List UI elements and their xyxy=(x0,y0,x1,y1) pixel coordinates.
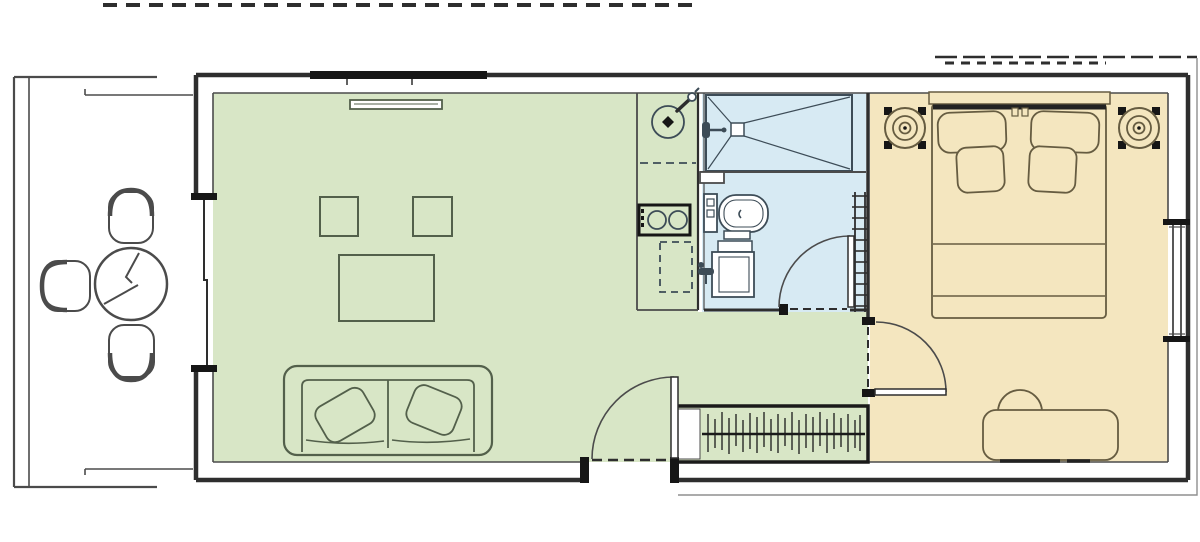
bench-seat xyxy=(983,410,1118,460)
door-leaf xyxy=(848,236,854,307)
high-window-top-wall xyxy=(310,71,487,79)
speaker-dot xyxy=(903,126,907,130)
shower-drain xyxy=(731,123,744,136)
sofa xyxy=(284,366,492,455)
washbasin xyxy=(712,252,754,297)
basin-tap-knob xyxy=(698,262,704,268)
shower-control xyxy=(722,128,727,133)
basin-faucet xyxy=(698,268,714,275)
wardrobe xyxy=(674,406,868,462)
door-jamb xyxy=(670,457,679,483)
window-jamb xyxy=(1163,219,1190,225)
hob-control xyxy=(641,216,644,220)
door-leaf xyxy=(875,389,946,395)
bistro-table xyxy=(95,248,167,320)
shower-head xyxy=(702,122,710,138)
bath-shelf xyxy=(724,231,750,239)
headboard-bracket xyxy=(1022,108,1028,116)
door-jamb xyxy=(862,389,875,397)
cushion-left xyxy=(956,146,1005,193)
speaker-left xyxy=(884,107,926,149)
headboard-bracket xyxy=(1012,108,1018,116)
hob-control xyxy=(641,223,644,227)
cushion-right xyxy=(1028,146,1077,193)
door-jamb xyxy=(191,193,217,200)
door-jamb xyxy=(580,457,589,483)
shower-return-wall xyxy=(700,172,724,183)
door-jamb xyxy=(779,304,788,315)
wardrobe-end-panel xyxy=(677,409,700,459)
faucet-head xyxy=(688,93,696,101)
speaker-dot xyxy=(1137,126,1141,130)
bath-shelf xyxy=(718,241,752,252)
toilet-cistern xyxy=(704,194,717,232)
headboard xyxy=(929,92,1110,104)
speaker-right xyxy=(1118,107,1160,149)
door-jamb xyxy=(862,317,875,325)
door-jamb xyxy=(191,365,217,372)
floor-plan-page xyxy=(0,0,1200,542)
chair-left xyxy=(43,261,90,311)
deck xyxy=(14,77,194,487)
hob-control xyxy=(641,209,644,213)
window-jamb xyxy=(1163,336,1190,342)
door-leaf xyxy=(671,377,678,458)
floor-plan xyxy=(0,0,1200,542)
